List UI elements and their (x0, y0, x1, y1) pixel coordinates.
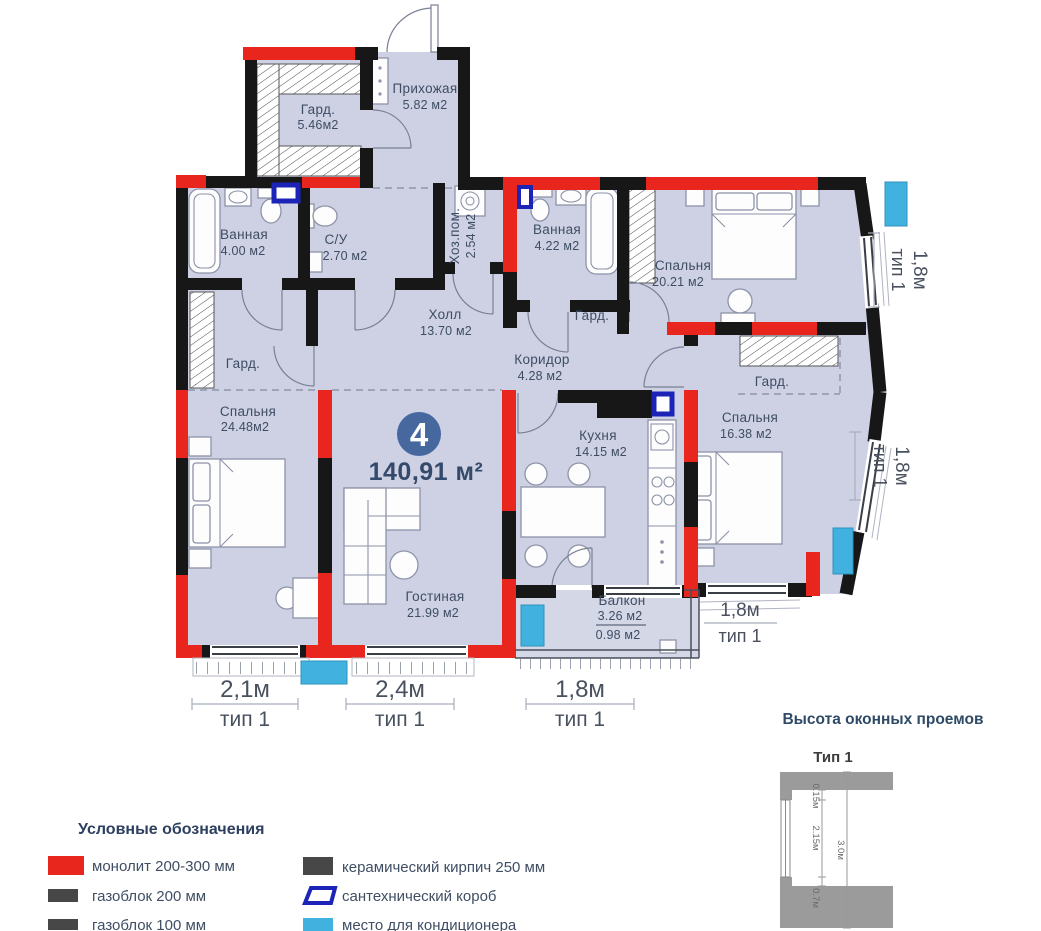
svg-text:керамический кирпич 250 мм: керамический кирпич 250 мм (342, 859, 545, 876)
svg-text:тип 1: тип 1 (375, 708, 425, 731)
measure-label: 0.15м (810, 783, 821, 808)
floor-plan: Гард. 5.46м2 Прихожая 5.82 м2 Ванная 4.0… (176, 5, 930, 731)
coffee-table (390, 551, 418, 579)
room-area: 4.22 м2 (535, 239, 580, 253)
room-area: 4.28 м2 (518, 369, 563, 383)
room-label: Гостиная (405, 589, 464, 604)
room-label: С/У (325, 232, 348, 247)
svg-text:1,8м: 1,8м (909, 250, 930, 289)
floorplan-page: Гард. 5.46м2 Прихожая 5.82 м2 Ванная 4.0… (0, 0, 1041, 931)
ac-place (833, 528, 853, 574)
kitchen-counter (648, 420, 676, 588)
room-label: Ванная (533, 222, 581, 237)
legend-item: место для кондиционера (303, 917, 517, 931)
ac-place (301, 661, 347, 684)
svg-text:газоблок 200 мм: газоблок 200 мм (92, 888, 206, 905)
total-area: 140,91 м² (369, 458, 484, 486)
svg-text:2,4м: 2,4м (375, 676, 425, 703)
legend-item: газоблок 100 мм (48, 917, 206, 931)
room-area: 4.00 м2 (221, 244, 266, 258)
room-label: Спальня (722, 410, 778, 425)
room-label: Холл (428, 307, 461, 322)
window-heights-title: Высота оконных проемов (782, 711, 983, 728)
room-label: Прихожая (393, 81, 458, 96)
ac-place-swatch (303, 918, 333, 931)
bathtub (586, 188, 618, 274)
balcony-box (660, 640, 676, 653)
bed (690, 452, 782, 544)
svg-text:тип 1: тип 1 (555, 708, 605, 731)
gasblock100-swatch (48, 919, 78, 930)
sink (225, 188, 251, 206)
wall-section-bottom (780, 877, 893, 928)
monolith-swatch (48, 856, 84, 875)
room-area: 24.48м2 (221, 420, 269, 434)
sanitary-box (274, 185, 298, 201)
legend-item: сантехнический короб (305, 888, 497, 905)
room-label: Ванная (220, 227, 268, 242)
room-label: Спальня (220, 404, 276, 419)
room-label: Гард. (226, 356, 260, 371)
sanitary-box (519, 187, 531, 207)
wall-section-top (780, 772, 893, 800)
pouf (728, 289, 752, 313)
room-area: 13.70 м2 (420, 324, 472, 338)
svg-text:место для кондиционера: место для кондиционера (342, 917, 517, 931)
room-area: 2.70 м2 (323, 249, 368, 263)
svg-text:газоблок 100 мм: газоблок 100 мм (92, 917, 206, 931)
svg-text:1,8м: 1,8м (555, 676, 605, 703)
sanitary-box (654, 394, 672, 414)
svg-text:тип 1: тип 1 (870, 444, 890, 487)
room-label: Гард. (755, 374, 789, 389)
room-label: Коридор (514, 352, 569, 367)
ac-place (521, 605, 544, 646)
room-label: Гард. (575, 308, 609, 323)
room-label: Гард. (301, 102, 335, 117)
svg-text:монолит 200-300 мм: монолит 200-300 мм (92, 858, 235, 875)
room-area: 3.26 м2 (598, 609, 643, 623)
svg-text:сантехнический короб: сантехнический короб (342, 888, 497, 905)
measure-label: 2.15м (810, 825, 821, 850)
dim-bottom-2: 2,4м тип 1 (346, 676, 454, 731)
svg-text:тип 1: тип 1 (888, 248, 908, 291)
room-area: 14.15 м2 (575, 445, 627, 459)
bathtub (189, 189, 220, 273)
window-height-diagram: 0.15м 2.15м 0.7м 3.0м (780, 772, 893, 928)
measure-label: 3.0м (835, 840, 846, 860)
room-label: Хоз.пом. (447, 208, 462, 264)
svg-text:1,8м: 1,8м (891, 446, 912, 485)
room-area: 20.21 м2 (652, 275, 704, 289)
room-label: Спальня (655, 258, 711, 273)
svg-text:2,1м: 2,1м (220, 676, 270, 703)
window-type-label: Тип 1 (813, 749, 852, 766)
gasblock200-swatch (48, 889, 78, 902)
ac-place (885, 182, 907, 226)
measure-label: 0.7м (810, 888, 821, 908)
legend-item: монолит 200-300 мм (48, 856, 235, 875)
floorplan-svg: Гард. 5.46м2 Прихожая 5.82 м2 Ванная 4.0… (0, 0, 1041, 931)
room-area: 5.46м2 (297, 118, 338, 132)
window-heights: Высота оконных проемов Тип 1 0.15м 2.15м… (780, 711, 984, 928)
sanitary-box-swatch (305, 888, 335, 903)
dim-bottom-3: 1,8м тип 1 (526, 676, 634, 731)
room-area: 5.82 м2 (403, 98, 448, 112)
svg-text:тип 1: тип 1 (718, 626, 761, 646)
legend-item: керамический кирпич 250 мм (303, 857, 545, 876)
room-area: 0.98 м2 (596, 628, 641, 642)
room-label: Балкон (598, 593, 645, 608)
room-label: Кухня (579, 428, 617, 443)
room-area: 21.99 м2 (407, 606, 459, 620)
legend-item: газоблок 200 мм (48, 888, 206, 905)
dim-balcony: 1,8м тип 1 (704, 600, 777, 646)
room-area: 16.38 м2 (720, 427, 772, 441)
svg-text:1,8м: 1,8м (720, 600, 759, 621)
legend: Условные обозначения монолит 200-300 мм … (48, 821, 545, 931)
entrance-door (387, 5, 438, 52)
svg-text:тип 1: тип 1 (220, 708, 270, 731)
legend-title: Условные обозначения (78, 821, 264, 838)
apartment-number: 4 (410, 416, 429, 453)
dim-bottom-1: 2,1м тип 1 (192, 676, 298, 731)
room-area: 2.54 м2 (464, 214, 478, 259)
ceramic-brick-swatch (303, 857, 333, 875)
